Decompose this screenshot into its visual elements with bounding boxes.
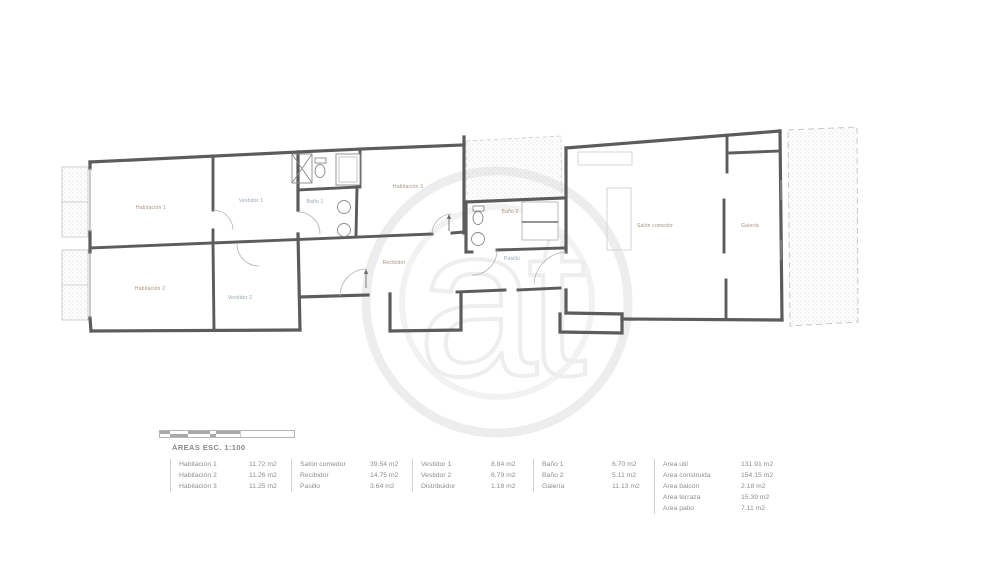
room-label-vestidor2: Vestidor 2: [228, 295, 252, 301]
terraza-hatch: [788, 127, 858, 326]
room-label-habitacion3: Habitación 3: [393, 184, 423, 190]
room-label-vestidor1: Vestidor 1: [239, 198, 263, 204]
area-row: Area balcón2.18 m2: [663, 481, 803, 492]
room-label-galeria: Galería: [741, 223, 759, 229]
areas-group-vestidores: Vestidor 18.84 m2 Vestidor 26.79 m2 Dist…: [412, 459, 533, 492]
areas-table: Habitación 111.72 m2 Habitación 211.26 m…: [170, 459, 803, 514]
toilet-icon: [315, 165, 325, 178]
area-row: Recibidor14.75 m2: [300, 470, 412, 481]
areas-group-salon: Salón comedor39.54 m2 Recibidor14.75 m2 …: [291, 459, 412, 492]
areas-group-habitaciones: Habitación 111.72 m2 Habitación 211.26 m…: [170, 459, 291, 492]
shower-tray: [522, 202, 558, 240]
room-label-salon: Salón comedor: [637, 223, 673, 229]
toilet-tank: [473, 206, 484, 211]
toilet-icon: [473, 212, 483, 225]
door-arc-vestidor1: [213, 210, 233, 230]
area-row: Vestidor 26.79 m2: [421, 470, 533, 481]
area-row: Baño 25.11 m2: [542, 470, 654, 481]
area-row: Salón comedor39.54 m2: [300, 459, 412, 470]
room-label-pasillo: Pasillo: [504, 256, 520, 262]
patio-hatch: [466, 136, 562, 202]
room-label-recibidor: Recibidor: [383, 260, 406, 266]
room-label-bano1: Baño 1: [306, 199, 323, 205]
scale-bar: [159, 430, 295, 438]
area-row: Galería11.13 m2: [542, 481, 654, 492]
area-row: Area construida154.15 m2: [663, 470, 803, 481]
room-label-bano2: Baño 2: [501, 209, 518, 215]
area-row: Pasillo3.64 m2: [300, 481, 412, 492]
area-row: Habitación 211.26 m2: [179, 470, 291, 481]
area-row: Area terraza15.39 m2: [663, 492, 803, 503]
area-row: Area util131.91 m2: [663, 459, 803, 470]
area-row: Area patio7.11 m2: [663, 503, 803, 514]
room-label-habitacion1: Habitación 1: [136, 205, 166, 211]
areas-group-totales: Area util131.91 m2 Area construida154.15…: [654, 459, 803, 514]
door-arc-vestidor2: [237, 244, 259, 266]
balcony-hatches: [62, 167, 88, 320]
door-arc-bano1: [298, 212, 320, 234]
bathroom1-fixtures: [315, 154, 360, 237]
room-label-habitacion2: Habitación 2: [135, 286, 165, 292]
area-row: Habitación 111.72 m2: [179, 459, 291, 470]
sink-icon: [338, 224, 351, 237]
legend-title: ÁREAS ESC. 1:100: [172, 443, 246, 452]
area-row: Habitación 311.25 m2: [179, 481, 291, 492]
area-row: Vestidor 18.84 m2: [421, 459, 533, 470]
toilet-tank: [315, 158, 326, 163]
floorplan-page: at: [0, 0, 1004, 563]
areas-group-banos: Baño 16.70 m2 Baño 25.11 m2 Galería11.13…: [533, 459, 654, 492]
area-row: Distribuidor1.18 m2: [421, 481, 533, 492]
area-row: Baño 16.70 m2: [542, 459, 654, 470]
watermark-logo: at: [366, 171, 628, 433]
sink-icon: [472, 233, 485, 246]
sink-icon: [338, 201, 351, 214]
ventilation-shaft: [292, 154, 312, 183]
